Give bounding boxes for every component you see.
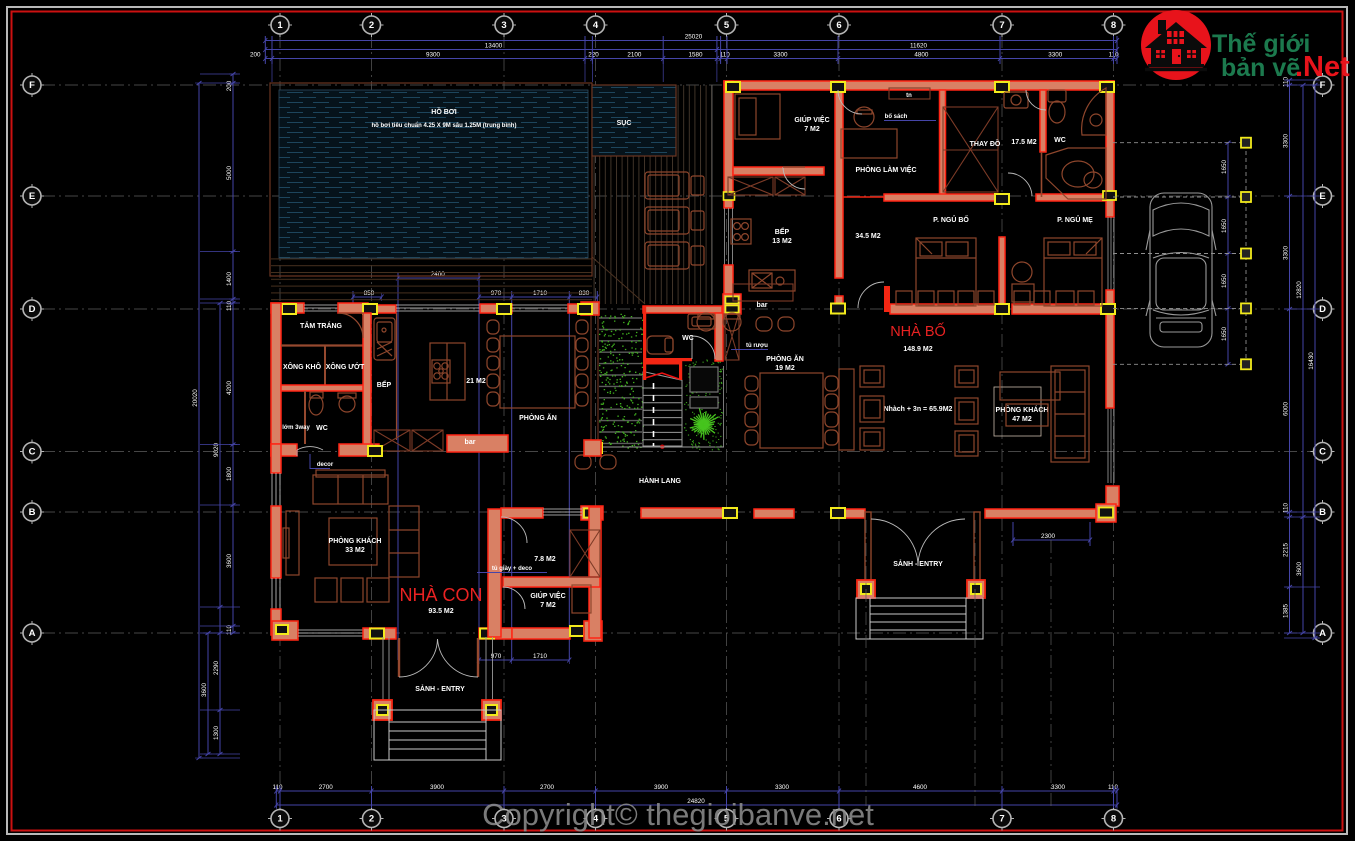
svg-text:1650: 1650: [1221, 160, 1228, 175]
svg-text:110: 110: [720, 52, 731, 59]
svg-text:3: 3: [501, 20, 506, 31]
svg-text:GIÚP VIỆC: GIÚP VIỆC: [794, 115, 829, 124]
svg-text:2290: 2290: [213, 661, 220, 676]
svg-text:PHÒNG KHÁCH: PHÒNG KHÁCH: [329, 536, 382, 545]
svg-text:13400: 13400: [485, 43, 503, 50]
svg-text:7: 7: [999, 814, 1004, 825]
svg-text:3300: 3300: [1048, 52, 1063, 59]
svg-text:7 M2: 7 M2: [804, 126, 820, 133]
svg-text:2: 2: [369, 20, 374, 31]
svg-text:4200: 4200: [226, 381, 233, 396]
svg-text:1710: 1710: [533, 653, 548, 660]
svg-text:1300: 1300: [213, 726, 220, 741]
svg-text:D: D: [29, 304, 36, 315]
svg-text:XÔNG KHÔ: XÔNG KHÔ: [283, 362, 322, 371]
svg-text:1385: 1385: [1283, 604, 1290, 619]
svg-text:NHÀ BỐ: NHÀ BỐ: [890, 322, 946, 340]
svg-text:2300: 2300: [1041, 533, 1056, 540]
svg-text:PHÒNG ĂN: PHÒNG ĂN: [766, 354, 804, 363]
svg-text:3300: 3300: [1283, 246, 1290, 261]
svg-text:4800: 4800: [914, 52, 929, 59]
svg-text:34.5 M2: 34.5 M2: [855, 233, 880, 240]
svg-text:C: C: [29, 447, 36, 458]
svg-text:Copyright© thegioibanve.net: Copyright© thegioibanve.net: [482, 797, 874, 832]
svg-text:1: 1: [277, 814, 283, 825]
svg-text:TẮM TRÁNG: TẮM TRÁNG: [300, 321, 343, 330]
svg-text:tn: tn: [906, 93, 912, 99]
svg-text:6: 6: [836, 20, 841, 31]
svg-text:110: 110: [1283, 502, 1290, 513]
svg-text:200: 200: [250, 52, 261, 59]
svg-text:2: 2: [369, 814, 374, 825]
svg-text:SẢNH - ENTRY: SẢNH - ENTRY: [893, 559, 943, 568]
svg-text:bố sách: bố sách: [885, 113, 908, 120]
svg-text:93.5 M2: 93.5 M2: [428, 608, 453, 615]
svg-text:P. NGỦ MẸ: P. NGỦ MẸ: [1057, 215, 1093, 224]
svg-text:3300: 3300: [775, 784, 790, 791]
svg-text:D: D: [1319, 304, 1326, 315]
svg-text:E: E: [29, 191, 35, 202]
svg-text:1650: 1650: [1221, 327, 1228, 342]
svg-text:148.9 M2: 148.9 M2: [903, 346, 932, 353]
svg-text:12820: 12820: [1296, 281, 1303, 299]
svg-text:11620: 11620: [910, 43, 928, 50]
svg-text:17.5 M2: 17.5 M2: [1011, 139, 1036, 146]
svg-text:HÀNH LANG: HÀNH LANG: [639, 476, 682, 485]
svg-text:3600: 3600: [201, 683, 208, 698]
svg-text:E: E: [1319, 191, 1325, 202]
svg-text:1: 1: [277, 20, 283, 31]
svg-text:220: 220: [588, 52, 599, 59]
svg-text:2700: 2700: [319, 784, 334, 791]
svg-text:25020: 25020: [685, 34, 703, 41]
svg-text:Nhàch + 3n = 65.9M2: Nhàch + 3n = 65.9M2: [884, 406, 953, 413]
svg-text:F: F: [29, 80, 35, 91]
svg-text:A: A: [29, 628, 36, 639]
svg-text:7: 7: [999, 20, 1004, 31]
svg-text:PHÒNG LÀM VIỆC: PHÒNG LÀM VIỆC: [855, 165, 916, 174]
svg-text:33 M2: 33 M2: [345, 547, 365, 554]
svg-text:B: B: [29, 507, 36, 518]
svg-text:47 M2: 47 M2: [1012, 416, 1032, 423]
svg-text:3600: 3600: [226, 554, 233, 569]
svg-text:lớm 3way: lớm 3way: [282, 425, 310, 431]
svg-text:21 M2: 21 M2: [466, 378, 486, 385]
svg-text:bar: bar: [757, 302, 768, 309]
svg-text:tủ giày + deco: tủ giày + deco: [492, 566, 533, 572]
svg-text:WC: WC: [316, 425, 328, 432]
svg-text:PHÒNG KHÁCH: PHÒNG KHÁCH: [996, 405, 1049, 414]
svg-text:13 M2: 13 M2: [772, 238, 792, 245]
svg-text:3300: 3300: [773, 52, 788, 59]
svg-text:bar: bar: [465, 439, 476, 446]
svg-text:3900: 3900: [654, 784, 669, 791]
svg-text:110: 110: [226, 300, 233, 311]
svg-text:8: 8: [1111, 20, 1116, 31]
svg-text:hồ bơi tiêu chuẩn 4.25 X 9M: hồ bơi tiêu chuẩn 4.25 X 9M sâu 1.25M (t…: [372, 122, 517, 129]
svg-text:XÔNG ƯỚT: XÔNG ƯỚT: [326, 362, 365, 371]
svg-text:4: 4: [593, 20, 599, 31]
svg-text:1400: 1400: [226, 272, 233, 287]
svg-text:3900: 3900: [430, 784, 445, 791]
svg-text:1650: 1650: [1221, 219, 1228, 234]
svg-text:3300: 3300: [1051, 784, 1066, 791]
svg-text:2215: 2215: [1283, 543, 1290, 558]
svg-text:tủ rượu: tủ rượu: [746, 343, 768, 349]
svg-text:PHÒNG ĂN: PHÒNG ĂN: [519, 413, 557, 422]
svg-text:3300: 3300: [1283, 134, 1290, 149]
svg-text:3600: 3600: [1296, 562, 1303, 577]
svg-text:1650: 1650: [1221, 274, 1228, 289]
svg-text:bản vẽ: bản vẽ: [1221, 54, 1300, 82]
svg-text:WC: WC: [1054, 137, 1066, 144]
svg-text:C: C: [1319, 447, 1326, 458]
svg-text:5: 5: [724, 20, 730, 31]
svg-text:19 M2: 19 M2: [775, 365, 795, 372]
svg-text:16430: 16430: [1308, 352, 1315, 370]
svg-text:8: 8: [1111, 814, 1116, 825]
svg-text:.Net: .Net: [1295, 51, 1350, 83]
svg-text:SỤC: SỤC: [617, 120, 632, 127]
svg-text:4600: 4600: [913, 784, 928, 791]
svg-text:6000: 6000: [1283, 402, 1290, 417]
svg-text:decor: decor: [317, 462, 334, 468]
svg-text:9300: 9300: [426, 52, 441, 59]
svg-text:2100: 2100: [627, 52, 642, 59]
svg-text:1800: 1800: [226, 467, 233, 482]
svg-text:2700: 2700: [540, 784, 555, 791]
svg-text:NHÀ CON: NHÀ CON: [399, 585, 482, 605]
svg-text:GIÚP VIỆC: GIÚP VIỆC: [530, 591, 565, 600]
svg-text:110: 110: [272, 784, 283, 791]
svg-text:20020: 20020: [192, 389, 199, 407]
svg-text:200: 200: [226, 80, 233, 91]
svg-text:7.8 M2: 7.8 M2: [534, 556, 556, 563]
svg-text:WC: WC: [682, 335, 694, 342]
svg-text:7 M2: 7 M2: [540, 602, 556, 609]
svg-text:B: B: [1319, 507, 1326, 518]
svg-text:A: A: [1319, 628, 1326, 639]
svg-text:SẢNH - ENTRY: SẢNH - ENTRY: [415, 684, 465, 693]
svg-text:1580: 1580: [688, 52, 703, 59]
svg-text:5000: 5000: [226, 166, 233, 181]
